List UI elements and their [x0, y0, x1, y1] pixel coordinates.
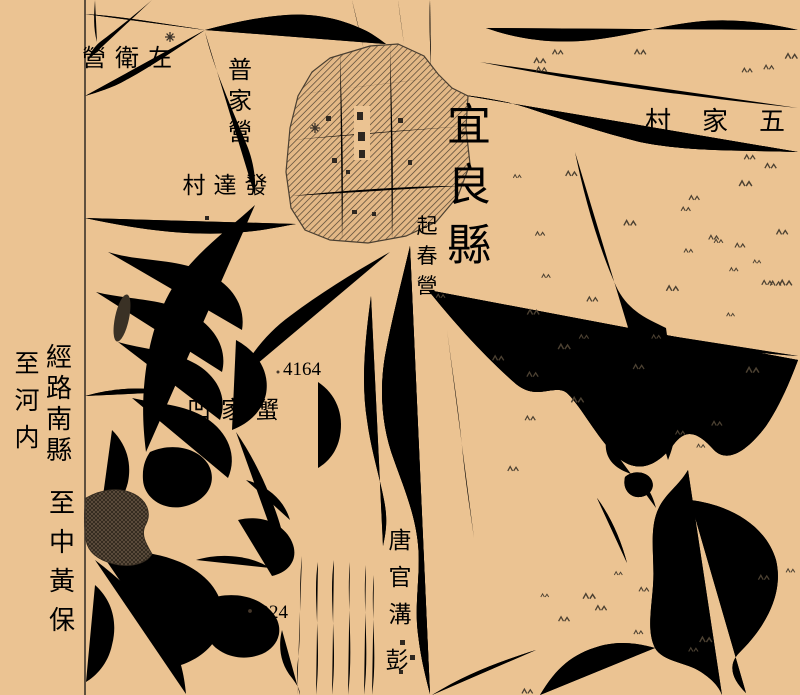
house-symbol: [410, 655, 415, 660]
svg-text:至: 至: [49, 489, 75, 518]
contour-lines: [86, 252, 374, 695]
house-symbol: [497, 78, 503, 84]
boundary-line: [297, 556, 302, 695]
grass-tuft-symbol: [541, 594, 549, 597]
svg-text:營: 營: [82, 45, 106, 72]
svg-text:起: 起: [417, 214, 438, 238]
house-symbol: [214, 128, 218, 132]
map-sheet: 至河内經路南縣至中黃保左衛營普家營發達村宜良縣起春營五家村蟹家凹唐官溝彭4164…: [0, 0, 800, 695]
label-tangguangou: 唐官溝: [389, 528, 412, 627]
label-peng: 彭: [386, 648, 409, 673]
grass-tuft-symbol: [635, 50, 646, 55]
svg-text:村: 村: [183, 173, 206, 198]
grass-tuft-symbol: [666, 286, 678, 291]
label-wujiacun: 五家村: [645, 107, 785, 136]
svg-text:南: 南: [46, 405, 72, 434]
note-via-lunan-county: 經路南縣: [46, 343, 72, 465]
house-symbol: [90, 130, 95, 135]
label-yiliangxian: 宜良縣: [447, 101, 491, 270]
svg-text:内: 内: [14, 424, 39, 452]
house-symbol: [101, 112, 105, 116]
grass-tuft-symbol: [513, 175, 521, 178]
grass-tuft-symbol: [534, 58, 546, 63]
house-symbol: [90, 176, 95, 181]
svg-text:唐: 唐: [389, 528, 412, 553]
svg-text:左: 左: [148, 45, 172, 72]
grass-tuft-symbol: [714, 239, 723, 243]
svg-text:官: 官: [389, 565, 412, 590]
grass-tuft-symbol: [735, 243, 745, 247]
svg-text:家: 家: [221, 397, 245, 424]
grass-tuft-symbol: [765, 164, 776, 169]
house-symbol: [90, 106, 95, 111]
house-symbol: [123, 111, 127, 115]
house-symbol: [377, 548, 382, 553]
woods-patch: [85, 490, 153, 566]
grass-tuft-symbol: [566, 171, 577, 176]
svg-text:宜: 宜: [447, 101, 491, 150]
house-symbol: [91, 222, 95, 226]
grass-tuft-symbol: [753, 260, 761, 263]
grass-tuft-symbol: [522, 689, 533, 693]
spot-height-4164: 4164: [283, 359, 322, 380]
house-symbol: [400, 640, 405, 645]
walled-town-yiliang: [165, 32, 470, 243]
label-fadacun: 發達村: [183, 173, 268, 198]
svg-text:普: 普: [228, 57, 252, 84]
svg-text:4164: 4164: [283, 359, 322, 380]
topographic-map-canvas: 至河内經路南縣至中黃保左衛營普家營發達村宜良縣起春營五家村蟹家凹唐官溝彭4164…: [0, 0, 800, 695]
grass-tuft-symbol: [709, 235, 719, 239]
house-symbol: [378, 583, 382, 587]
svg-text:4224: 4224: [250, 602, 289, 623]
svg-text:黃: 黃: [49, 567, 75, 596]
svg-text:經: 經: [46, 343, 72, 372]
svg-text:良: 良: [447, 161, 491, 210]
grass-tuft-symbol: [508, 467, 519, 471]
house-symbol: [513, 84, 518, 89]
label-zuoweiying: 左衛營: [82, 45, 172, 72]
house-symbol: [203, 118, 208, 123]
house-symbol: [256, 214, 261, 219]
house-symbol: [222, 213, 227, 218]
svg-text:路: 路: [46, 374, 72, 403]
svg-text:河: 河: [14, 387, 39, 415]
house-symbol: [563, 96, 568, 101]
grass-tuft-symbol: [542, 274, 551, 278]
svg-text:家: 家: [228, 88, 252, 115]
svg-text:村: 村: [645, 107, 671, 136]
svg-text:彭: 彭: [386, 648, 409, 673]
svg-text:縣: 縣: [447, 221, 491, 270]
svg-text:衛: 衛: [115, 45, 139, 72]
grass-tuft-symbol: [583, 594, 595, 599]
grass-tuft-symbol: [624, 221, 636, 226]
house-symbol: [546, 92, 551, 97]
svg-text:保: 保: [49, 606, 75, 635]
label-qichunying: 起春營: [417, 214, 438, 298]
grass-tuft-symbol: [739, 181, 752, 186]
grass-tuft-symbol: [634, 630, 643, 634]
svg-text:中: 中: [49, 528, 75, 557]
grass-tuft-symbol: [639, 587, 649, 591]
svg-text:達: 達: [214, 173, 237, 198]
svg-text:蟹: 蟹: [255, 397, 279, 424]
grass-tuft-symbol: [697, 444, 705, 447]
svg-text:五: 五: [759, 107, 785, 136]
embankment-band: [428, 290, 798, 466]
grass-tuft-symbol: [764, 65, 774, 69]
town-hatched-area: [286, 44, 470, 243]
svg-text:縣: 縣: [46, 436, 72, 465]
house-symbol: [92, 152, 96, 156]
grass-tuft-symbol: [689, 196, 699, 200]
grass-tuft-symbol: [727, 313, 735, 316]
house-symbol: [93, 200, 97, 204]
svg-text:至: 至: [14, 351, 39, 378]
house-symbol: [134, 108, 138, 112]
house-symbol: [581, 84, 586, 89]
grass-tuft-symbol: [614, 572, 622, 575]
grass-tuft-symbol: [595, 606, 606, 611]
note-to-hanoi: 至河内: [14, 351, 39, 452]
grass-tuft-symbol: [730, 268, 739, 271]
grass-tuft-symbol: [684, 249, 693, 253]
grass-tuft-symbol: [559, 617, 570, 621]
grass-tuft-symbol: [785, 54, 797, 59]
river-channel: [650, 470, 722, 695]
house-symbol: [377, 559, 381, 563]
svg-text:發: 發: [245, 173, 268, 198]
grass-tuft-symbol: [535, 232, 544, 236]
note-to-zhonghuangbao: 至中黃保: [49, 489, 75, 635]
house-symbol: [393, 269, 397, 273]
house-symbol: [112, 107, 117, 112]
house-symbol: [529, 88, 534, 93]
house-symbol: [379, 571, 384, 576]
grass-tuft-symbol: [744, 155, 755, 159]
house-symbol: [390, 258, 394, 262]
grass-tuft-symbol: [525, 416, 535, 420]
svg-text:營: 營: [417, 274, 438, 298]
spot-height-4224: 4224: [250, 602, 289, 623]
grass-tuft-symbol: [587, 297, 598, 301]
svg-text:營: 營: [228, 119, 252, 146]
grass-tuft-symbol: [742, 68, 752, 72]
grass-tuft-symbol: [681, 207, 690, 211]
label-xiejiaao: 蟹家凹: [187, 397, 279, 424]
house-symbol: [190, 212, 195, 217]
house-symbol: [205, 216, 209, 220]
house-symbol: [200, 136, 204, 140]
svg-text:凹: 凹: [187, 398, 211, 424]
grass-tuft-symbol: [779, 280, 791, 285]
grass-tuft-symbol: [777, 230, 788, 235]
svg-text:家: 家: [702, 107, 728, 136]
label-pujiaying: 普家營: [228, 57, 252, 146]
grass-tuft-symbol: [553, 50, 563, 54]
svg-text:春: 春: [417, 244, 438, 268]
svg-text:溝: 溝: [389, 602, 412, 627]
grass-tuft-symbol: [786, 569, 795, 573]
